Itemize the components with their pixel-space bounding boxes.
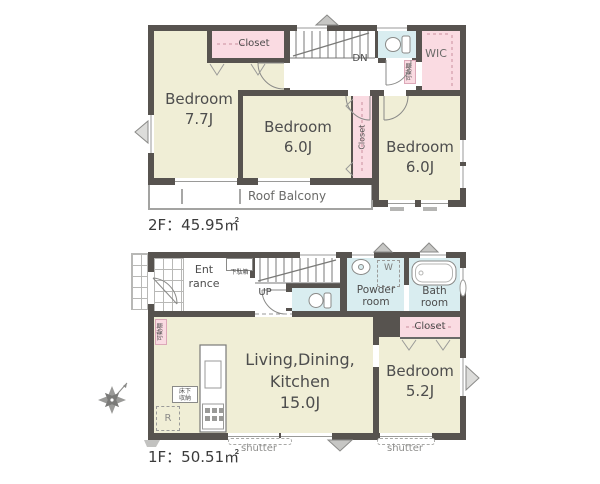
window — [377, 25, 407, 31]
window — [175, 178, 237, 185]
window — [300, 252, 336, 258]
window — [421, 200, 448, 207]
label-bedroom-7-7j: Bedroom7.7J — [154, 90, 244, 129]
label-area-2f: 2F：45.95㎡ — [148, 216, 308, 236]
label-bedroom-5-2j: Bedroom5.2J — [379, 362, 461, 401]
label-bedroom-6-0j-right: Bedroom6.0J — [379, 138, 461, 177]
shutter-label-right: shutter — [377, 442, 433, 455]
label-bath-room: Bathroom — [409, 286, 460, 309]
window — [258, 178, 310, 185]
label-bedroom-6-0j-center: Bedroom6.0J — [243, 118, 353, 157]
window — [460, 268, 466, 292]
washer-space: W — [377, 260, 400, 287]
window — [352, 252, 374, 258]
label-closet-1f: Closet — [400, 320, 460, 333]
label-entrance: Entrance — [176, 263, 232, 291]
label-area-1f: 1F：50.51㎡ — [148, 448, 318, 468]
label-stairs-up: UP — [250, 286, 280, 299]
compass-icon — [98, 383, 127, 414]
window — [388, 200, 415, 207]
porch-tiles — [131, 253, 148, 310]
label-wic: WIC — [420, 47, 452, 61]
floor-storage: 床下収納 — [172, 386, 198, 403]
window — [420, 252, 446, 258]
label-closet-2f-top: Closet — [224, 37, 284, 50]
movable-shelf-1f: 可動棚 — [155, 319, 167, 345]
room-toilet-1f — [292, 288, 340, 311]
label-stairs-dn: DN — [346, 52, 374, 65]
movable-shelf-2f: 可動棚 — [404, 60, 416, 84]
window — [297, 25, 327, 31]
label-ldk: Living,Dining,Kitchen15.0J — [220, 349, 380, 414]
label-powder-room: Powderroom — [347, 285, 405, 308]
label-roof-balcony: Roof Balcony — [227, 189, 347, 205]
fridge-space: R — [156, 406, 180, 431]
room-toilet-2f — [378, 31, 416, 58]
label-closet-2f-mid: Closet — [350, 114, 375, 160]
floor-plan: 可動棚 — [0, 0, 600, 484]
